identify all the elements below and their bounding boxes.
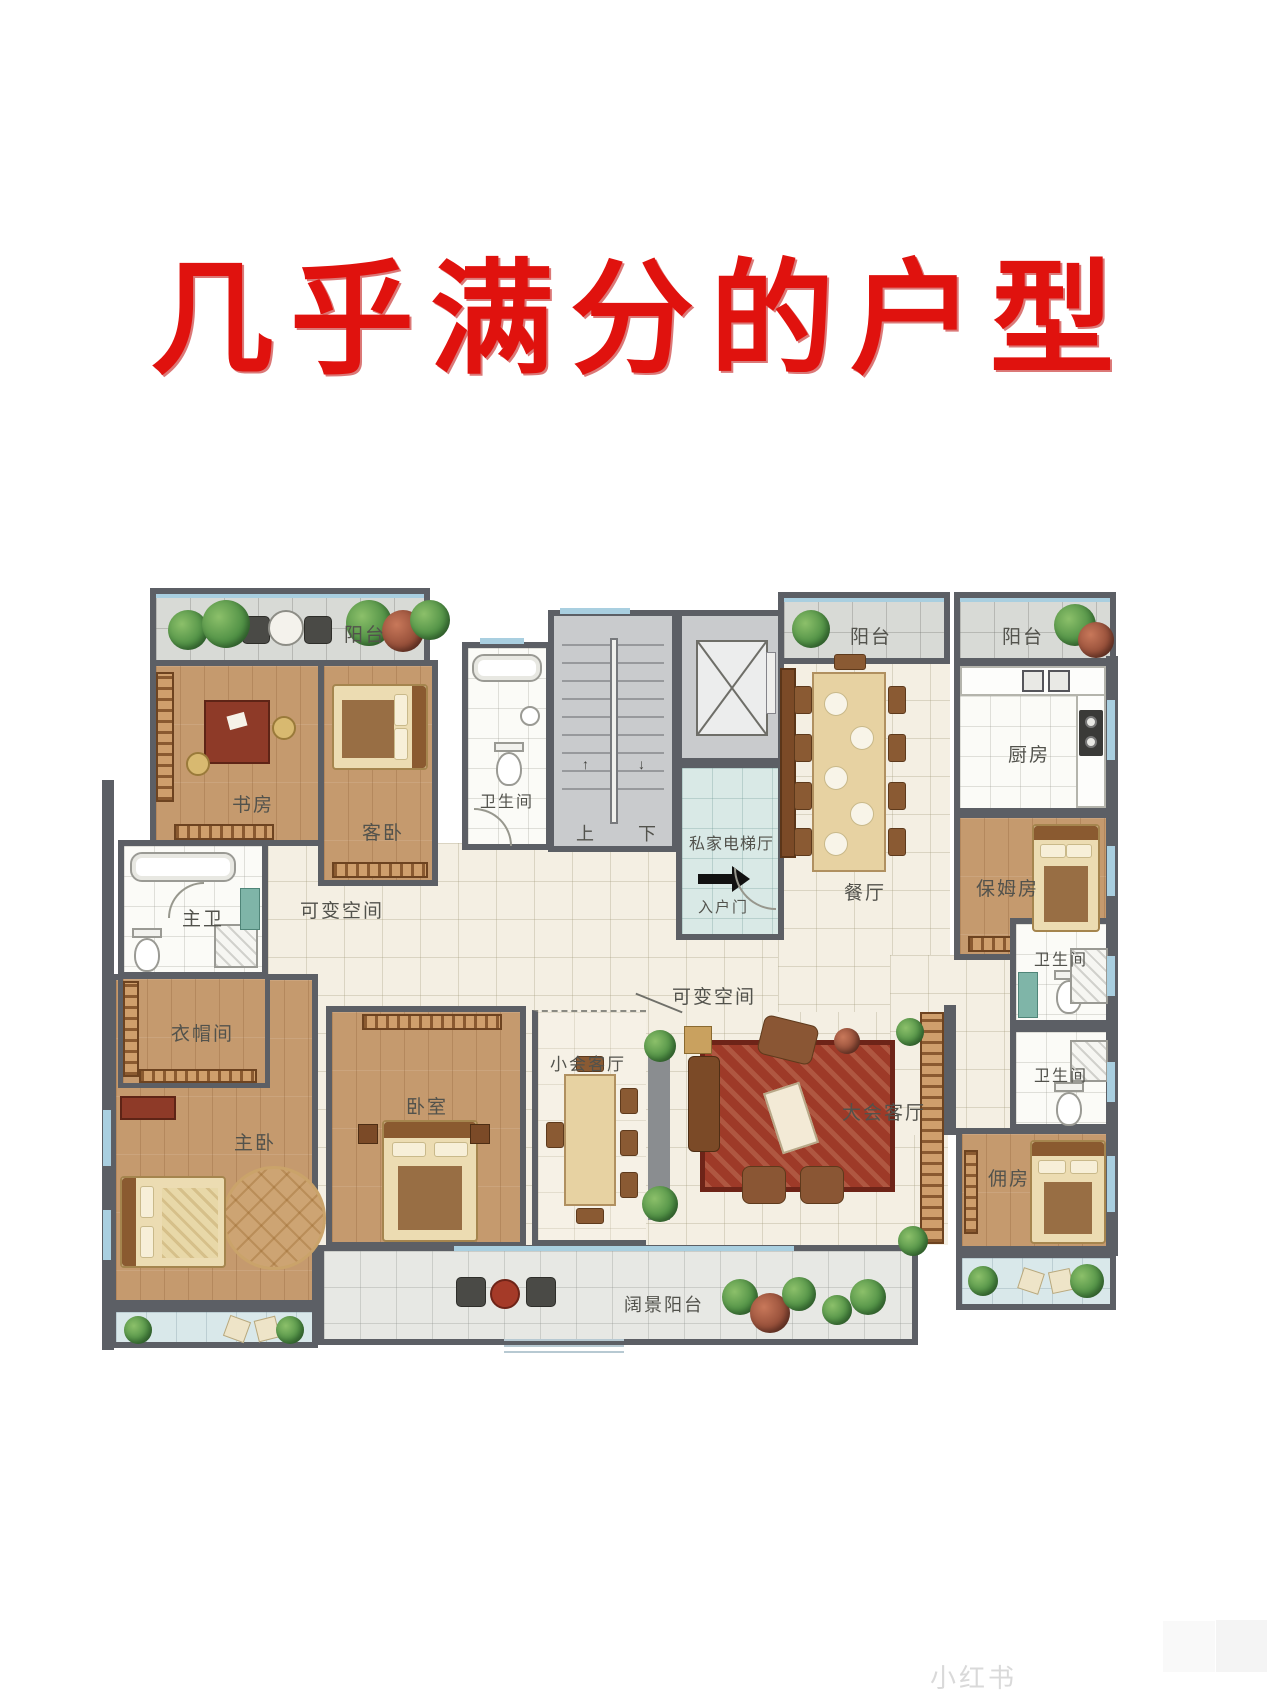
- room-bath-right-bottom: 卫生间: [1010, 1026, 1116, 1130]
- wall-lounge-right: [944, 1005, 956, 1135]
- plant-icon: [792, 610, 830, 648]
- balcony-top-right-2: 阳台: [954, 592, 1116, 664]
- room-study: 书房: [150, 660, 324, 846]
- chair-icon: [888, 782, 906, 810]
- bed-icon: [120, 1176, 226, 1268]
- toilet-icon: [494, 742, 524, 752]
- chair-icon: [620, 1088, 638, 1114]
- plant-icon: [642, 1186, 678, 1222]
- stairs-up-label: 上: [576, 820, 596, 846]
- window-glass: [103, 1110, 111, 1166]
- bed-icon: [332, 684, 428, 770]
- stairs-down-label: 下: [638, 820, 658, 846]
- cushion-icon: [223, 1315, 251, 1343]
- wardrobe-icon: [964, 1150, 978, 1234]
- stairwell: ↑ ↓ 上 下: [548, 610, 678, 852]
- chair-icon: [888, 686, 906, 714]
- door-arc: [474, 808, 512, 846]
- chair-icon: [620, 1172, 638, 1198]
- chair-icon: [186, 752, 210, 776]
- bathtub-icon: [130, 852, 236, 882]
- floorplan-post: 几乎满分的户型 阳台 书房 客卧: [0, 0, 1280, 1708]
- chair-icon: [794, 828, 812, 856]
- window-glass: [156, 594, 424, 598]
- room-label: 佣房: [988, 1164, 1030, 1191]
- window-glass: [960, 598, 1110, 602]
- chair-icon: [546, 1122, 564, 1148]
- room-label: 厨房: [1008, 740, 1050, 767]
- room-label: 卫生间: [480, 788, 534, 812]
- watermark-box: [1216, 1620, 1267, 1672]
- room-label: 餐厅: [844, 878, 886, 905]
- room-master-bath: 主卫: [118, 840, 268, 978]
- room-label: 卫生间: [1034, 946, 1088, 970]
- bed-icon: [382, 1120, 478, 1242]
- bookshelf-icon: [174, 824, 274, 840]
- room-label: 私家电梯厅: [689, 830, 774, 854]
- room-guest-bedroom: 客卧: [318, 660, 438, 886]
- room-label: 衣帽间: [171, 1019, 234, 1046]
- balcony-maid: [956, 1252, 1116, 1310]
- elevator-x-icon: [696, 640, 768, 736]
- entry-arrow-icon: [698, 874, 732, 884]
- plant-icon: [124, 1316, 152, 1344]
- window-glass: [1107, 1156, 1115, 1212]
- cabinet-icon: [1018, 972, 1038, 1018]
- cabinet-strip-icon: [920, 1012, 944, 1244]
- bathtub-icon: [472, 654, 542, 682]
- plant-icon: [644, 1030, 676, 1062]
- side-table-icon: [684, 1026, 712, 1054]
- room-label: 卧室: [406, 1092, 448, 1119]
- window-glass: [784, 598, 944, 602]
- plant-icon: [850, 1279, 886, 1315]
- chair-icon: [456, 1277, 486, 1307]
- down-arrow-icon: ↓: [638, 756, 645, 772]
- step-lines: [504, 1339, 624, 1353]
- room-label: 阳台: [344, 620, 386, 647]
- toilet-icon: [134, 938, 160, 972]
- sink-icon: [1022, 670, 1044, 692]
- room-label: 客卧: [362, 818, 404, 845]
- bed-icon: [1030, 1140, 1106, 1244]
- window-glass: [454, 1246, 794, 1251]
- plant-icon: [202, 600, 250, 648]
- cabinet-icon: [240, 888, 260, 930]
- desk-icon: [204, 700, 270, 764]
- wardrobe-icon: [123, 981, 139, 1077]
- stair-rail: [610, 638, 618, 824]
- chair-icon: [834, 654, 866, 670]
- room-label: 主卧: [234, 1128, 276, 1155]
- chair-icon: [888, 734, 906, 762]
- elevator-panel: [766, 652, 776, 714]
- chair-icon: [888, 828, 906, 856]
- watermark-text: 小红书: [930, 1658, 1017, 1695]
- chair-icon: [576, 1208, 604, 1224]
- plant-icon: [834, 1028, 860, 1054]
- wardrobe-icon: [139, 1069, 257, 1083]
- plant-icon: [276, 1316, 304, 1344]
- elevator-shaft: [676, 610, 784, 764]
- plant-icon: [898, 1226, 928, 1256]
- desk-icon: [120, 1096, 176, 1120]
- chair-icon: [526, 1277, 556, 1307]
- wardrobe-icon: [332, 862, 428, 878]
- sink-icon: [1048, 670, 1070, 692]
- chair-icon: [794, 686, 812, 714]
- plant-icon: [896, 1018, 924, 1046]
- nightstand-icon: [470, 1124, 490, 1144]
- window-glass: [480, 638, 524, 644]
- room-cloakroom: 衣帽间: [118, 974, 270, 1088]
- plant-icon: [1078, 622, 1114, 658]
- room-label: 阳台: [1002, 622, 1044, 649]
- round-table-icon: [490, 1279, 520, 1309]
- wardrobe-icon: [362, 1014, 502, 1030]
- armchair-icon: [742, 1166, 786, 1204]
- toilet-icon: [496, 752, 522, 786]
- room-kitchen: 厨房: [954, 660, 1112, 814]
- room-label: 书房: [232, 790, 274, 817]
- plant-icon: [822, 1295, 852, 1325]
- round-rug-icon: [222, 1166, 326, 1270]
- toilet-icon: [132, 928, 162, 938]
- room-bath-upper: 卫生间: [462, 642, 552, 850]
- bookshelf-icon: [156, 672, 174, 802]
- plant-icon: [968, 1266, 998, 1296]
- balcony-view: 阔景阳台: [318, 1245, 918, 1345]
- toilet-icon: [1056, 1092, 1082, 1126]
- plant-icon: [1070, 1264, 1104, 1298]
- room-label: 阔景阳台: [624, 1291, 704, 1317]
- window-glass: [1107, 846, 1115, 896]
- dining-table-icon: [812, 672, 886, 872]
- plant-icon: [410, 600, 450, 640]
- chair-icon: [272, 716, 296, 740]
- private-elevator-hall: 私家电梯厅 入户门: [676, 762, 784, 940]
- entry-door-label: 入户门: [698, 896, 749, 917]
- up-arrow-icon: ↑: [582, 756, 589, 772]
- chair-icon: [620, 1130, 638, 1156]
- room-label: 保姆房: [976, 874, 1039, 901]
- wall-left: [102, 780, 114, 1350]
- window-glass: [560, 608, 630, 614]
- window-glass: [1107, 700, 1115, 760]
- room-maid: 佣房: [956, 1128, 1116, 1252]
- chair-icon: [794, 734, 812, 762]
- chair-icon: [304, 616, 332, 644]
- bed-icon: [1032, 824, 1100, 932]
- room-bath-right-top: 卫生间: [1010, 918, 1116, 1026]
- plant-icon: [782, 1277, 816, 1311]
- nightstand-icon: [358, 1124, 378, 1144]
- window-glass: [103, 1210, 111, 1260]
- sofa-icon: [688, 1056, 720, 1152]
- armchair-icon: [800, 1166, 844, 1204]
- chair-icon: [794, 782, 812, 810]
- stove-icon: [1079, 710, 1103, 756]
- window-glass: [1107, 956, 1115, 996]
- sink-icon: [520, 706, 540, 726]
- flex-space-left-label: 可变空间: [300, 896, 384, 923]
- window-glass: [1107, 1062, 1115, 1102]
- room-label: 小会客厅: [550, 1050, 626, 1075]
- room-label: 卫生间: [1034, 1062, 1088, 1086]
- watermark-box: [1163, 1621, 1215, 1672]
- balcony-top-left: 阳台: [150, 588, 430, 666]
- balcony-master: [110, 1306, 318, 1348]
- page-title: 几乎满分的户型: [0, 218, 1280, 398]
- room-label: 大会客厅: [842, 1098, 926, 1125]
- room-small-lounge: 小会客厅: [532, 1010, 646, 1246]
- flex-space-center-label: 可变空间: [672, 982, 756, 1009]
- cushion-icon: [1017, 1267, 1045, 1295]
- lounge-table-icon: [564, 1074, 616, 1206]
- round-table-icon: [268, 610, 304, 646]
- room-label: 主卫: [182, 904, 224, 931]
- room-label: 阳台: [850, 622, 892, 649]
- room-bedroom: 卧室: [326, 1006, 526, 1248]
